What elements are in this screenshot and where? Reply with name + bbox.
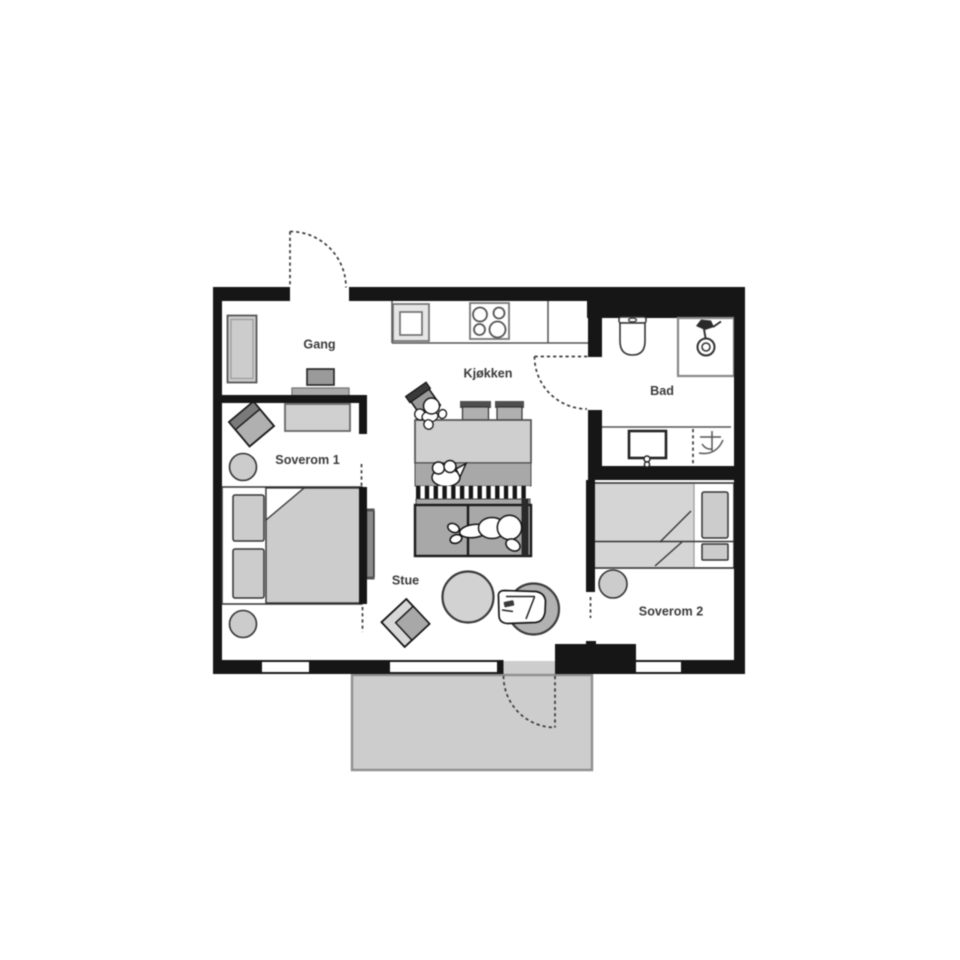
svg-text:Stue: Stue bbox=[392, 574, 419, 588]
svg-text:Soverom 2: Soverom 2 bbox=[639, 605, 703, 619]
svg-text:Bad: Bad bbox=[650, 384, 674, 398]
svg-text:Soverom 1: Soverom 1 bbox=[275, 453, 339, 467]
svg-text:Kjøkken: Kjøkken bbox=[464, 367, 513, 381]
svg-text:Gang: Gang bbox=[303, 338, 335, 352]
